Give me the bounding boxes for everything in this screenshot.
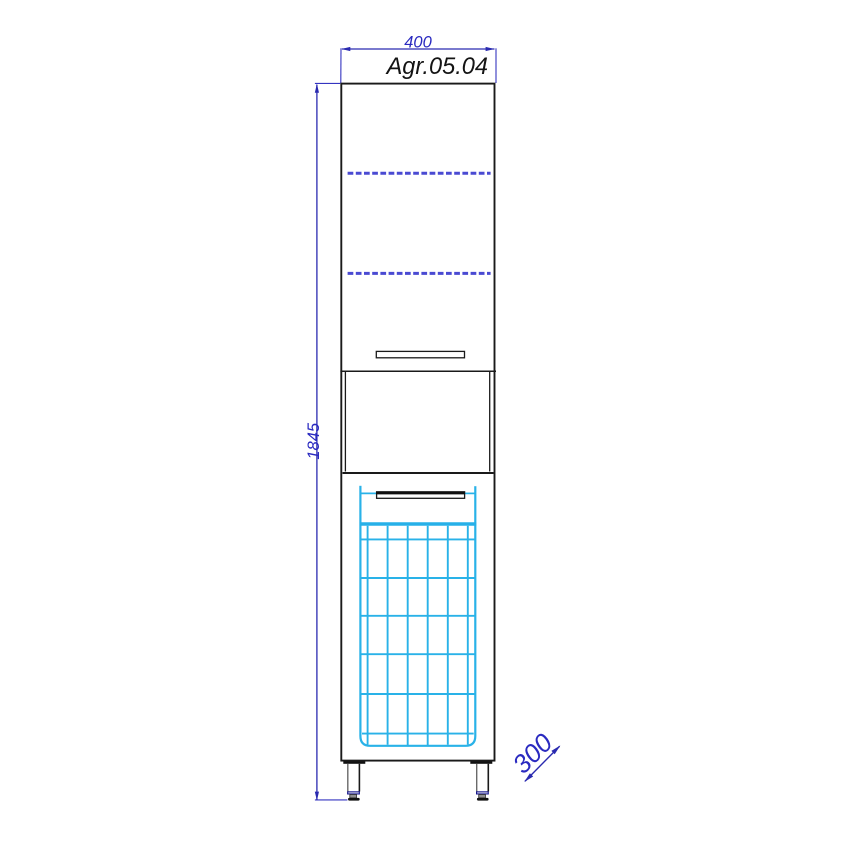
svg-text:300: 300 — [506, 727, 558, 779]
svg-text:Agr.05.04: Agr.05.04 — [385, 54, 488, 80]
svg-text:1845: 1845 — [305, 422, 323, 460]
svg-text:400: 400 — [404, 34, 432, 52]
